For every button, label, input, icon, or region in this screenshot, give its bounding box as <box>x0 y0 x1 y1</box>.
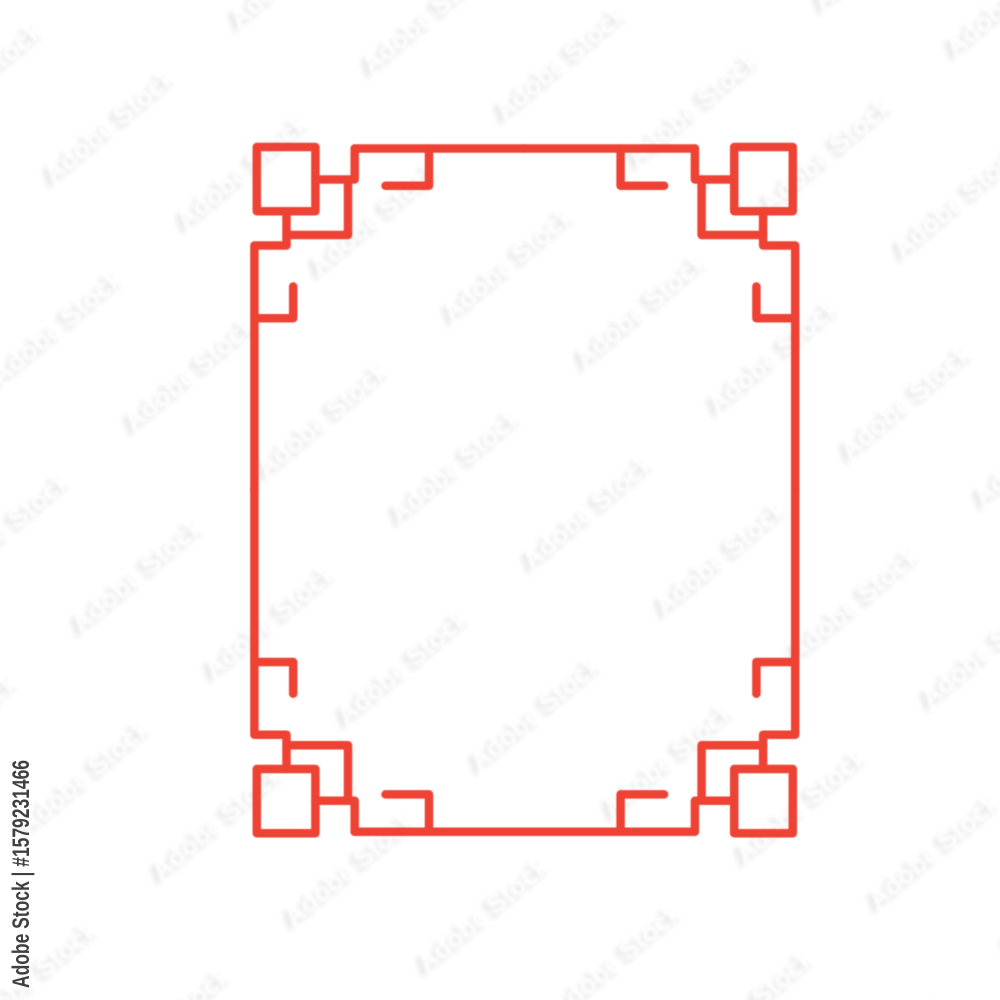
svg-text:Adobe Stock | #1579231466: Adobe Stock | #1579231466 <box>8 760 35 988</box>
